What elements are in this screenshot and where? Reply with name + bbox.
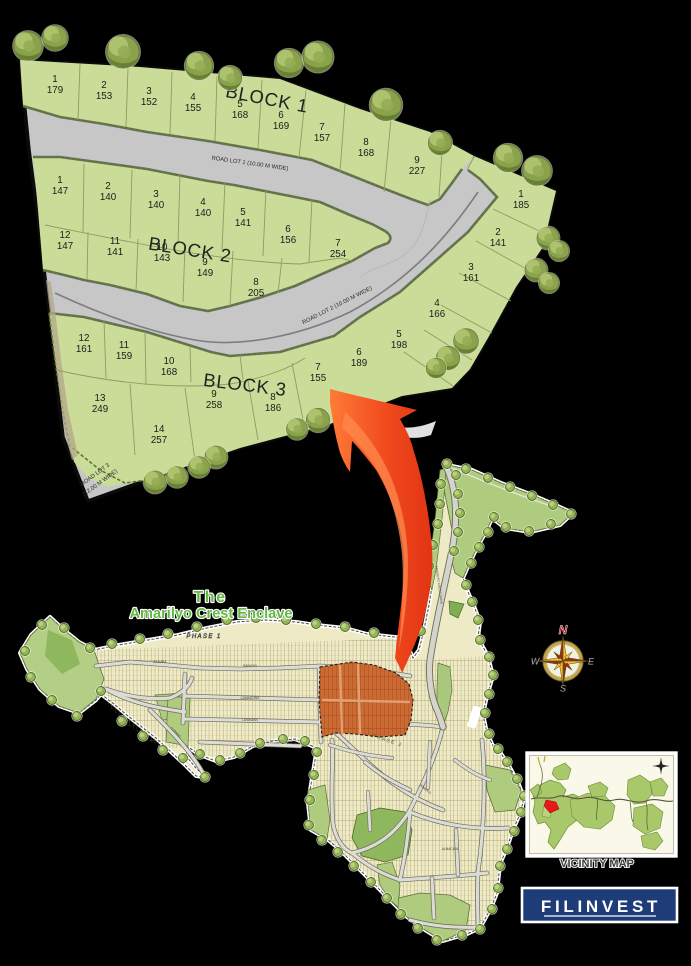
svg-text:169: 169 xyxy=(273,121,289,132)
svg-text:168: 168 xyxy=(161,367,178,378)
svg-text:ALMACIGA: ALMACIGA xyxy=(442,847,459,851)
svg-text:147: 147 xyxy=(52,186,68,197)
svg-text:S: S xyxy=(560,684,566,694)
svg-text:140: 140 xyxy=(195,208,212,219)
svg-text:N: N xyxy=(559,623,568,637)
svg-text:161: 161 xyxy=(76,344,92,355)
svg-text:159: 159 xyxy=(116,351,132,362)
svg-text:189: 189 xyxy=(351,358,367,369)
svg-text:140: 140 xyxy=(100,192,117,203)
svg-text:205: 205 xyxy=(248,288,265,299)
svg-text:4: 4 xyxy=(434,298,440,309)
svg-text:7: 7 xyxy=(315,362,320,373)
svg-text:4: 4 xyxy=(200,197,206,208)
svg-text:FILINVEST: FILINVEST xyxy=(541,897,661,916)
svg-text:12: 12 xyxy=(79,333,90,344)
svg-text:12: 12 xyxy=(60,230,71,241)
svg-text:3: 3 xyxy=(468,262,474,273)
svg-text:157: 157 xyxy=(314,133,330,144)
svg-text:198: 198 xyxy=(391,340,408,351)
svg-text:The: The xyxy=(194,589,227,606)
svg-text:257: 257 xyxy=(151,435,167,446)
svg-text:140: 140 xyxy=(148,200,165,211)
svg-text:2: 2 xyxy=(495,227,500,238)
svg-text:11: 11 xyxy=(119,340,129,351)
svg-text:141: 141 xyxy=(107,247,123,258)
svg-text:BANUYO: BANUYO xyxy=(243,664,257,668)
svg-text:166: 166 xyxy=(429,309,446,320)
svg-text:W: W xyxy=(531,657,541,667)
svg-text:Amarilyo Crest Enclave: Amarilyo Crest Enclave xyxy=(129,606,292,622)
svg-text:258: 258 xyxy=(206,400,223,411)
svg-text:1: 1 xyxy=(52,74,57,85)
svg-text:PHASE 1: PHASE 1 xyxy=(186,634,221,640)
svg-text:VICINITY MAP: VICINITY MAP xyxy=(560,858,634,870)
svg-text:152: 152 xyxy=(141,97,157,108)
svg-text:9: 9 xyxy=(414,155,419,166)
svg-text:153: 153 xyxy=(96,91,113,102)
svg-text:LANAWAN: LANAWAN xyxy=(242,718,258,722)
svg-text:185: 185 xyxy=(513,200,530,211)
svg-text:7: 7 xyxy=(319,122,324,133)
svg-text:7: 7 xyxy=(335,238,340,249)
svg-text:141: 141 xyxy=(235,218,251,229)
svg-text:254: 254 xyxy=(330,249,347,260)
svg-text:8: 8 xyxy=(363,137,369,148)
svg-text:3: 3 xyxy=(146,86,152,97)
svg-text:168: 168 xyxy=(358,148,375,159)
svg-text:3: 3 xyxy=(153,189,159,200)
svg-text:249: 249 xyxy=(92,404,108,415)
svg-text:5: 5 xyxy=(240,207,246,218)
svg-text:161: 161 xyxy=(463,273,479,284)
svg-text:11: 11 xyxy=(110,236,120,247)
svg-text:149: 149 xyxy=(197,268,213,279)
svg-text:6: 6 xyxy=(285,224,291,235)
svg-text:155: 155 xyxy=(185,103,202,114)
svg-text:2: 2 xyxy=(101,80,106,91)
svg-text:5: 5 xyxy=(396,329,402,340)
svg-text:147: 147 xyxy=(57,241,73,252)
svg-text:156: 156 xyxy=(280,235,297,246)
svg-text:2: 2 xyxy=(105,181,110,192)
svg-text:14: 14 xyxy=(154,424,165,435)
svg-text:10: 10 xyxy=(164,356,175,367)
svg-text:BANABA: BANABA xyxy=(154,660,168,664)
svg-text:CAMAGONG: CAMAGONG xyxy=(241,696,260,700)
svg-text:186: 186 xyxy=(265,403,282,414)
svg-text:E: E xyxy=(588,657,595,667)
svg-text:6: 6 xyxy=(356,347,362,358)
svg-text:227: 227 xyxy=(409,166,425,177)
svg-text:1: 1 xyxy=(57,175,62,186)
svg-text:155: 155 xyxy=(310,373,327,384)
svg-text:4: 4 xyxy=(190,92,196,103)
svg-text:141: 141 xyxy=(490,238,506,249)
svg-text:13: 13 xyxy=(95,393,106,404)
svg-text:168: 168 xyxy=(232,110,249,121)
svg-text:1: 1 xyxy=(518,189,523,200)
svg-text:179: 179 xyxy=(47,85,63,96)
svg-text:8: 8 xyxy=(253,277,259,288)
